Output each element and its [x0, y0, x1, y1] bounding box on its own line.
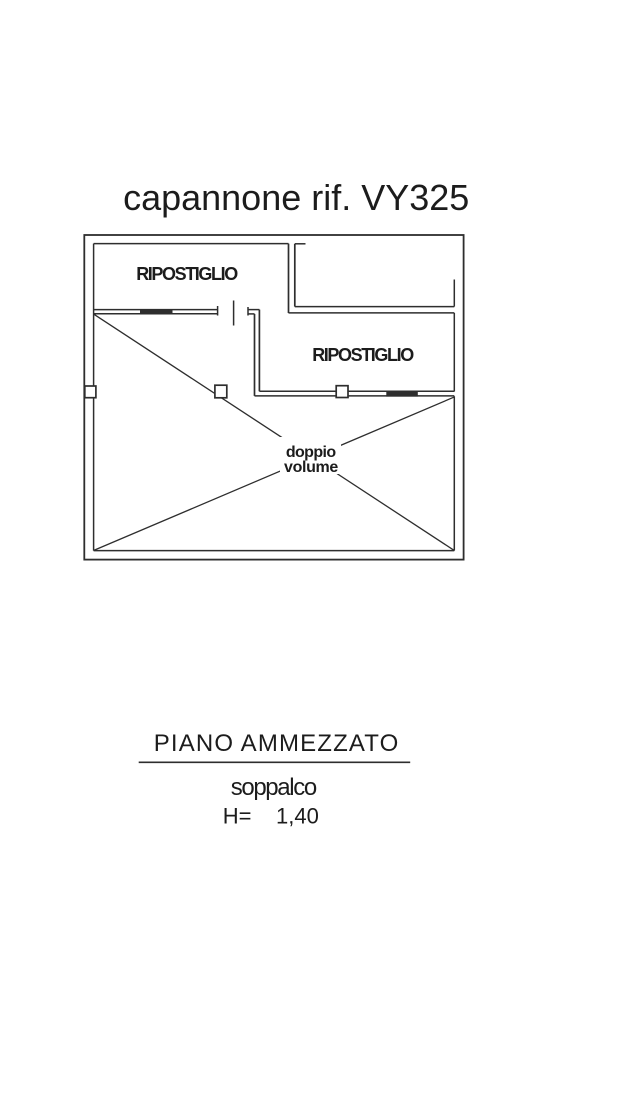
svg-text:H=: H= — [223, 804, 252, 829]
svg-text:1,40: 1,40 — [276, 804, 319, 829]
svg-text:PIANO AMMEZZATO: PIANO AMMEZZATO — [154, 730, 400, 757]
svg-text:RIPOSTIGLIO: RIPOSTIGLIO — [312, 345, 414, 365]
svg-text:RIPOSTIGLIO: RIPOSTIGLIO — [136, 264, 238, 284]
svg-text:soppalco: soppalco — [231, 774, 317, 801]
svg-text:volume: volume — [284, 459, 338, 476]
svg-text:capannone rif. VY325: capannone rif. VY325 — [123, 177, 469, 218]
